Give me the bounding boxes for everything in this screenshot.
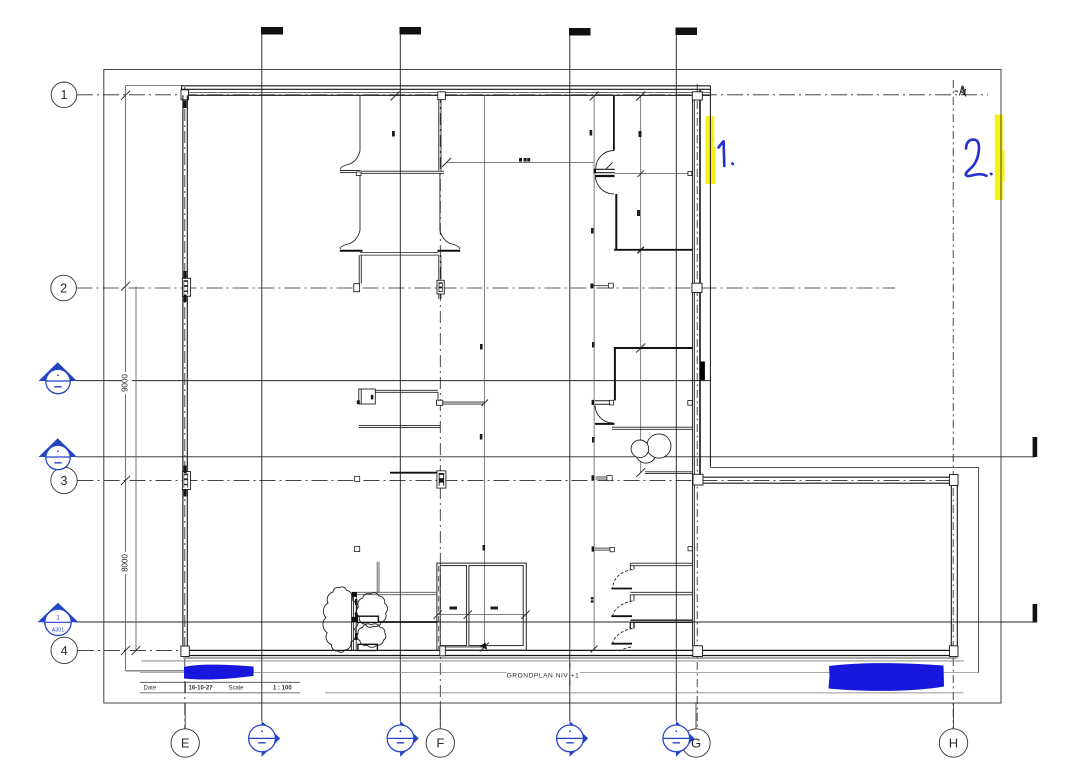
- svg-text:16-10-27: 16-10-27: [189, 685, 214, 691]
- svg-text:Date: Date: [144, 685, 157, 691]
- svg-text:3: 3: [61, 474, 68, 488]
- svg-text:A301: A301: [52, 628, 65, 634]
- svg-text:GRONDPLAN NIV +1: GRONDPLAN NIV +1: [507, 672, 580, 679]
- svg-text:H: H: [949, 736, 958, 751]
- svg-text:4: 4: [61, 644, 68, 658]
- svg-text:1: 1: [61, 88, 68, 102]
- svg-text:1: 1: [56, 614, 60, 621]
- svg-text:8000: 8000: [121, 554, 130, 572]
- svg-text:1 : 100: 1 : 100: [273, 685, 292, 691]
- svg-text:F: F: [436, 736, 444, 751]
- svg-text:9000: 9000: [121, 374, 130, 392]
- svg-text:Scale: Scale: [229, 686, 245, 692]
- svg-text:2: 2: [60, 281, 67, 295]
- svg-text:E: E: [181, 736, 190, 751]
